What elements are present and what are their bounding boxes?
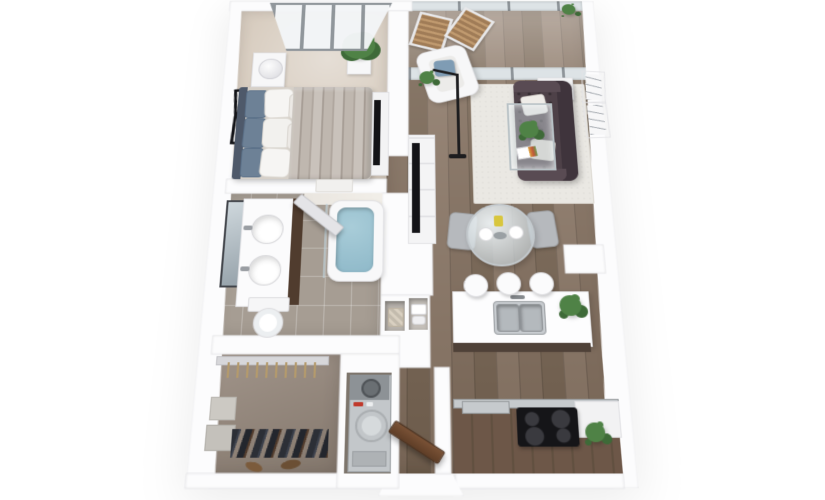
bar-stool bbox=[496, 272, 522, 295]
yellow-pitcher bbox=[494, 216, 503, 227]
towel-roll bbox=[412, 316, 426, 325]
center-bowl bbox=[493, 232, 506, 239]
bed-pillow bbox=[258, 147, 292, 178]
washer-drawer bbox=[352, 451, 387, 467]
hanging-clothes-row bbox=[230, 429, 329, 458]
coffee-table-plant bbox=[519, 121, 539, 138]
floorplan-image bbox=[0, 0, 825, 500]
bedroom-living-wall bbox=[387, 11, 409, 156]
sink-basin bbox=[519, 304, 543, 332]
sink-basin bbox=[496, 304, 520, 332]
balcony-window-wall bbox=[408, 1, 582, 11]
patterned-duvet bbox=[288, 87, 372, 179]
storage-box bbox=[209, 397, 237, 421]
bathtub-water bbox=[335, 207, 374, 272]
kitchen-stub-wall bbox=[564, 245, 606, 273]
island-faucet bbox=[510, 295, 525, 299]
closet-hangers bbox=[219, 362, 323, 378]
foot-bench bbox=[315, 179, 353, 192]
apartment-floorplan bbox=[184, 1, 639, 496]
kitchen-island-cabinet-face bbox=[453, 343, 591, 352]
bar-stool bbox=[463, 274, 488, 297]
cooktop bbox=[516, 407, 580, 446]
sofa-arm bbox=[517, 169, 567, 181]
dinner-plate bbox=[478, 227, 494, 241]
bedroom-tv bbox=[373, 100, 381, 165]
living-wall-poster bbox=[581, 71, 605, 104]
floor-lamp-base bbox=[449, 154, 467, 158]
bottom-wall-right-segment bbox=[456, 473, 625, 488]
living-tv bbox=[412, 143, 420, 233]
bar-stool bbox=[529, 272, 555, 295]
balcony-plant bbox=[561, 4, 575, 14]
bedroom-bathroom-wall bbox=[225, 179, 386, 193]
woven-basket bbox=[388, 308, 404, 327]
bathroom-closet-wall bbox=[211, 336, 399, 354]
washer-red-button bbox=[353, 402, 363, 406]
washer-white-button bbox=[366, 402, 373, 406]
island-plant bbox=[559, 295, 582, 316]
sink-faucet bbox=[243, 226, 252, 231]
dishwasher-front bbox=[462, 401, 510, 414]
dinner-plate bbox=[508, 226, 524, 240]
towel-stack bbox=[411, 304, 427, 315]
living-wall-poster bbox=[582, 101, 610, 138]
sofa-arm bbox=[513, 81, 561, 92]
sink-faucet bbox=[240, 266, 250, 271]
living-small-plant bbox=[419, 71, 434, 84]
